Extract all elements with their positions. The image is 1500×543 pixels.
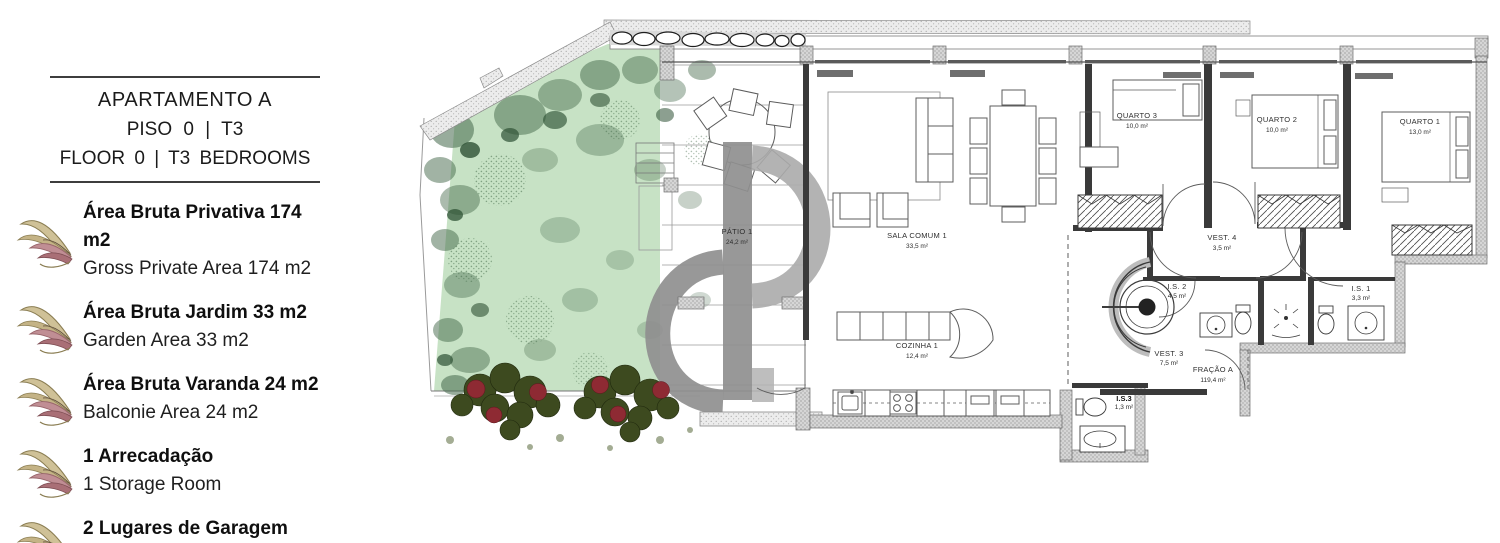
item-label-pt: Área Bruta Privativa 174 m2 [83, 199, 330, 255]
room-area-vest4: 3,5 m² [1213, 245, 1232, 252]
apartment-title: APARTAMENTO A [50, 89, 320, 112]
list-item-parking: 2 Lugares de Garagem 2 Parking Space [15, 515, 330, 543]
room-label-cozinha: COZINHA 1 [896, 341, 938, 350]
item-label-en: Garden Area 33 m2 [83, 327, 307, 355]
room-area-quarto1: 13,0 m² [1409, 129, 1432, 136]
watermark-dp-logo [658, 142, 818, 402]
living-room-furniture [828, 90, 1056, 227]
flower-sketch-icon [15, 515, 77, 543]
flower-sketch-icon [15, 371, 77, 427]
divider-top [50, 76, 320, 78]
room-label-vest4: VEST. 4 [1207, 233, 1236, 242]
item-label-pt: 2 Lugares de Garagem [83, 515, 288, 543]
kitchen-fixtures [833, 309, 1050, 416]
item-label-pt: Área Bruta Varanda 24 m2 [83, 371, 319, 399]
item-label-pt: 1 Arrecadação [83, 443, 221, 471]
list-item-storage: 1 Arrecadação 1 Storage Room [15, 443, 330, 499]
room-label-is2: I.S. 2 [1167, 282, 1186, 291]
room-label-quarto3: QUARTO 3 [1117, 111, 1157, 120]
floor-line-en: FLOOR 0 | T3 BEDROOMS [50, 148, 320, 170]
item-label-pt: Área Bruta Jardim 33 m2 [83, 299, 307, 327]
room-area-is1: 3,3 m² [1352, 295, 1371, 302]
room-area-sala: 33,5 m² [906, 243, 929, 250]
item-label-en: Gross Private Area 174 m2 [83, 255, 330, 283]
apartment-info-sidebar: APARTAMENTO A PISO 0 | T3 FLOOR 0 | T3 B… [15, 76, 330, 543]
room-label-fracao-a: FRAÇÃO A [1193, 365, 1233, 374]
flower-sketch-icon [15, 213, 77, 269]
list-item-garden-area: Área Bruta Jardim 33 m2 Garden Area 33 m… [15, 299, 330, 355]
floor-line-pt: PISO 0 | T3 [50, 119, 320, 141]
title-block: APARTAMENTO A PISO 0 | T3 FLOOR 0 | T3 B… [50, 76, 320, 183]
item-label-en: 1 Storage Room [83, 471, 221, 499]
room-label-quarto2: QUARTO 2 [1257, 115, 1297, 124]
wardrobes [1062, 195, 1472, 340]
floorplan-page: APARTAMENTO A PISO 0 | T3 FLOOR 0 | T3 B… [0, 0, 1500, 543]
item-label-en: Balconie Area 24 m2 [83, 399, 319, 427]
room-area-quarto3: 10,0 m² [1126, 123, 1149, 130]
room-label-sala: SALA COMUM 1 [887, 231, 947, 240]
flower-sketch-icon [15, 443, 77, 499]
room-label-vest3: VEST. 3 [1154, 349, 1183, 358]
room-area-is3: 1,3 m² [1115, 404, 1134, 411]
room-area-quarto2: 10,0 m² [1266, 127, 1289, 134]
feature-list: Área Bruta Privativa 174 m2 Gross Privat… [15, 199, 330, 543]
room-area-patio1: 24,2 m² [726, 239, 749, 246]
room-area-is2: 4,5 m² [1168, 293, 1187, 300]
room-area-vest3: 7,5 m² [1160, 360, 1179, 367]
room-area-fracao-a: 119,4 m² [1200, 377, 1226, 384]
room-label-patio1: PÁTIO 1 [722, 227, 753, 236]
room-area-cozinha: 12,4 m² [906, 353, 929, 360]
floorplan-drawing: PÁTIO 1 24,2 m² SALA COMUM 1 33,5 m² COZ… [415, 0, 1500, 543]
room-label-is3: I.S.3 [1116, 394, 1131, 403]
divider-bottom [50, 181, 320, 183]
flower-sketch-icon [15, 299, 77, 355]
window-bars [817, 70, 1393, 79]
room-label-is1: I.S. 1 [1351, 284, 1370, 293]
list-item-private-area: Área Bruta Privativa 174 m2 Gross Privat… [15, 199, 330, 283]
room-label-quarto1: QUARTO 1 [1400, 117, 1440, 126]
list-item-balcony-area: Área Bruta Varanda 24 m2 Balconie Area 2… [15, 371, 330, 427]
